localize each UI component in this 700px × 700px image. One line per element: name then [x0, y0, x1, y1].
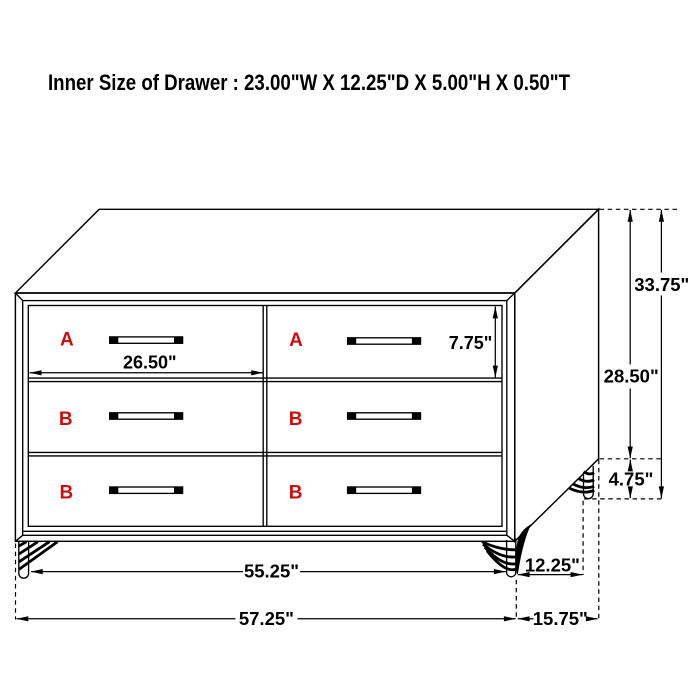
svg-text:B: B: [59, 409, 73, 430]
svg-text:33.75": 33.75": [634, 274, 689, 295]
svg-text:7.75": 7.75": [449, 333, 493, 353]
svg-text:B: B: [289, 409, 303, 430]
svg-text:12.25": 12.25": [525, 555, 580, 576]
svg-text:A: A: [289, 330, 303, 351]
svg-text:28.50": 28.50": [604, 365, 659, 386]
svg-text:Inner Size of Drawer : 23.00"W: Inner Size of Drawer : 23.00"W X 12.25"D…: [48, 70, 570, 95]
svg-text:15.75": 15.75": [533, 608, 588, 629]
svg-text:55.25": 55.25": [244, 561, 299, 582]
svg-text:57.25": 57.25": [239, 608, 294, 629]
svg-text:B: B: [60, 483, 74, 504]
svg-text:4.75": 4.75": [609, 468, 654, 489]
svg-text:A: A: [60, 330, 74, 351]
svg-text:B: B: [289, 483, 303, 504]
svg-text:26.50": 26.50": [123, 352, 177, 372]
